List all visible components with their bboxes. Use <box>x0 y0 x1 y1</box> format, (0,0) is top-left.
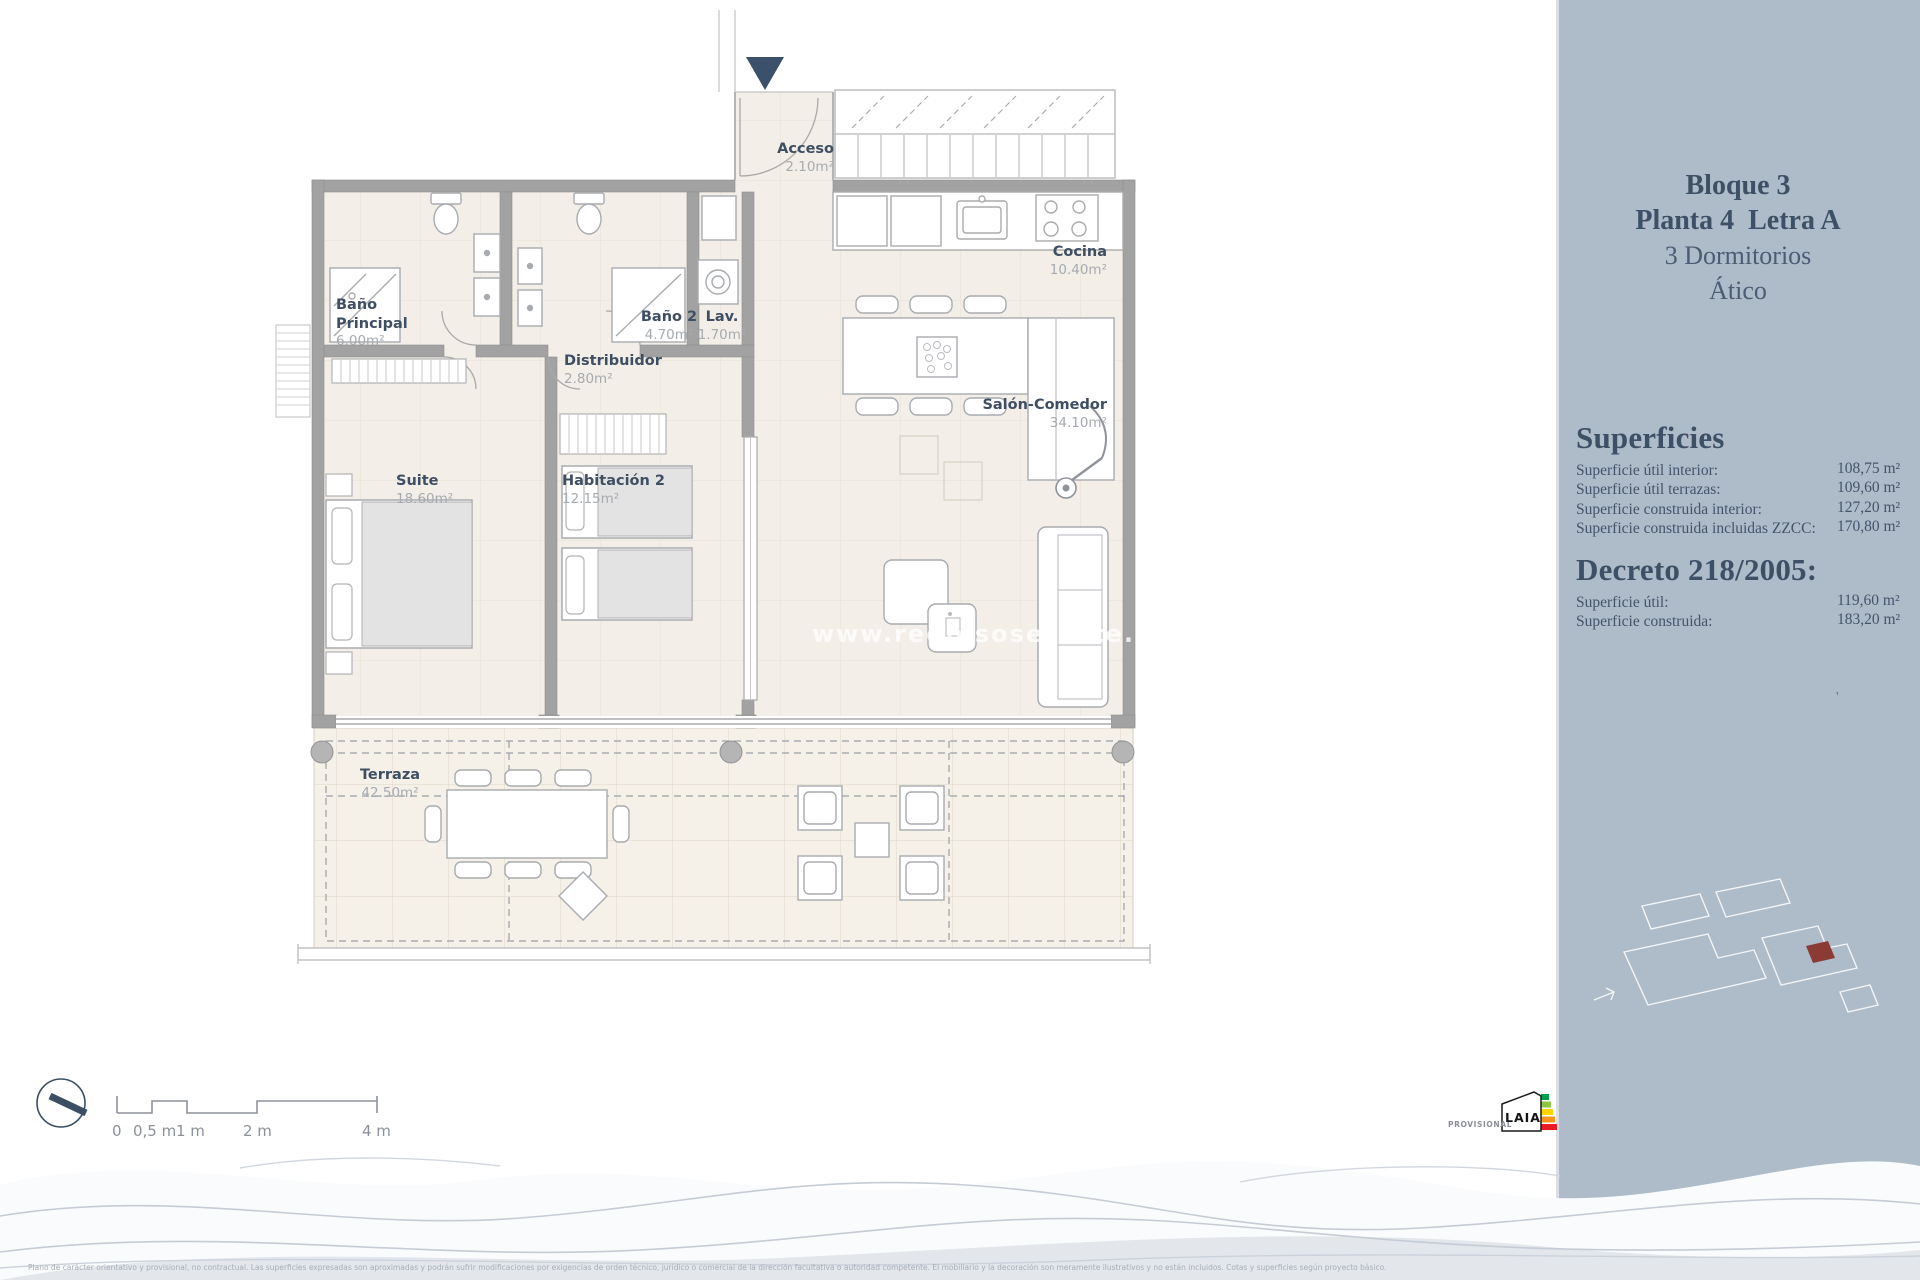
room-label-distribuidor: Distribuidor 2.80m² <box>564 352 674 388</box>
title-atico: Ático <box>1556 273 1920 308</box>
room-label-salon-comedor: Salón-Comedor 34.10m² <box>955 396 1107 432</box>
room-name: Salón-Comedor <box>982 397 1107 413</box>
energy-logo-text: LAIA <box>1505 1110 1541 1125</box>
room-label-banyo-principal: Baño Principal 6.00m² <box>336 296 422 350</box>
watermark: www.redpisosestate.com <box>812 620 1197 648</box>
title-bedrooms: 3 Dormitorios <box>1556 238 1920 273</box>
room-label-cocina: Cocina 10.40m² <box>995 243 1107 279</box>
room-name: Lav. <box>706 309 739 325</box>
room-label-habitacion2: Habitación 2 12.15m² <box>562 472 682 508</box>
superficies-section: Superficies Superficie útil interior: 10… <box>1576 420 1906 540</box>
room-area: 2.80m² <box>564 371 674 388</box>
decreto-row: Superficie construida: 183,20 m² <box>1576 613 1906 632</box>
scale-label-0: 0 <box>112 1122 122 1140</box>
title-floor-letter: Planta 4 Letra A <box>1556 203 1920 238</box>
entrance-arrow-icon <box>746 57 784 90</box>
columns <box>311 741 1134 763</box>
scale-label-05m: 0,5 m <box>133 1122 176 1140</box>
scale-label-4m: 4 m <box>362 1122 391 1140</box>
room-area: 10.40m² <box>995 262 1107 279</box>
island-dining <box>843 296 1114 480</box>
room-area: 1.70m² <box>694 327 750 344</box>
terrace-glazing <box>336 716 1111 728</box>
unit-title: Bloque 3 Planta 4 Letra A 3 Dormitorios … <box>1556 168 1920 308</box>
title-block: Bloque 3 <box>1556 168 1920 203</box>
room-name: Baño Principal <box>336 297 408 332</box>
superficie-label: Superficie útil interior: <box>1576 462 1718 480</box>
living-room-furniture <box>884 406 1108 707</box>
scale-label-2m: 2 m <box>243 1122 272 1140</box>
sliding-panel <box>744 437 757 700</box>
superficie-label: Superficie útil terrazas: <box>1576 481 1721 499</box>
superficie-label: Superficie construida incluidas ZZCC: <box>1576 520 1816 538</box>
decreto-label: Superficie construida: <box>1576 613 1712 631</box>
room-area: 42.50m² <box>340 785 440 802</box>
terrace-dashed-lines <box>326 741 1124 941</box>
room-label-lav: Lav. 1.70m² <box>694 308 750 344</box>
staircase <box>835 90 1115 178</box>
scale-label-1m: 1 m <box>176 1122 205 1140</box>
room-name: Suite <box>396 473 439 489</box>
superficie-value: 108,75 m² <box>1837 460 1900 478</box>
room-name: Baño 2 <box>641 309 697 325</box>
room-name: Habitación 2 <box>562 473 665 489</box>
room-area: 34.10m² <box>955 415 1107 432</box>
terrace-furniture <box>425 770 944 920</box>
stray-mark: ' <box>1836 690 1839 706</box>
room-name: Distribuidor <box>564 353 662 369</box>
decreto-heading: Decreto 218/2005: <box>1576 552 1906 588</box>
room-area: 12.15m² <box>562 491 682 508</box>
disclaimer-text: Plano de carácter orientativo y provisio… <box>28 1263 1528 1272</box>
superficie-value: 109,60 m² <box>1837 479 1900 497</box>
superficie-label: Superficie construida interior: <box>1576 501 1762 519</box>
floors <box>314 92 1133 948</box>
terrace-edge <box>298 944 1150 964</box>
scale-bar <box>117 1096 377 1113</box>
room-label-acceso: Acceso 2.10m² <box>742 140 834 176</box>
room-label-suite: Suite 18.60m² <box>396 472 476 508</box>
room-name: Terraza <box>360 767 420 783</box>
room-area: 6.00m² <box>336 333 422 350</box>
decreto-label: Superficie útil: <box>1576 594 1669 612</box>
superficie-value: 170,80 m² <box>1837 518 1900 536</box>
compass-icon <box>37 1079 86 1127</box>
superficies-heading: Superficies <box>1576 420 1906 456</box>
decreto-value: 183,20 m² <box>1837 611 1900 629</box>
decreto-value: 119,60 m² <box>1837 592 1900 610</box>
superficie-row: Superficie construida incluidas ZZCC: 17… <box>1576 520 1906 539</box>
room-label-terraza: Terraza 42.50m² <box>340 766 440 802</box>
decreto-section: Decreto 218/2005: Superficie útil: 119,6… <box>1576 552 1906 633</box>
room-area: 18.60m² <box>396 491 476 508</box>
kitchen-fixtures <box>833 192 1123 250</box>
room-area: 2.10m² <box>742 159 834 176</box>
provisional-label: PROVISIONAL <box>1448 1120 1512 1129</box>
page: Bloque 3 Planta 4 Letra A 3 Dormitorios … <box>0 0 1920 1280</box>
superficie-value: 127,20 m² <box>1837 499 1900 517</box>
room-name: Acceso <box>777 141 834 157</box>
room-name: Cocina <box>1053 244 1107 260</box>
exterior-louver <box>276 325 310 417</box>
